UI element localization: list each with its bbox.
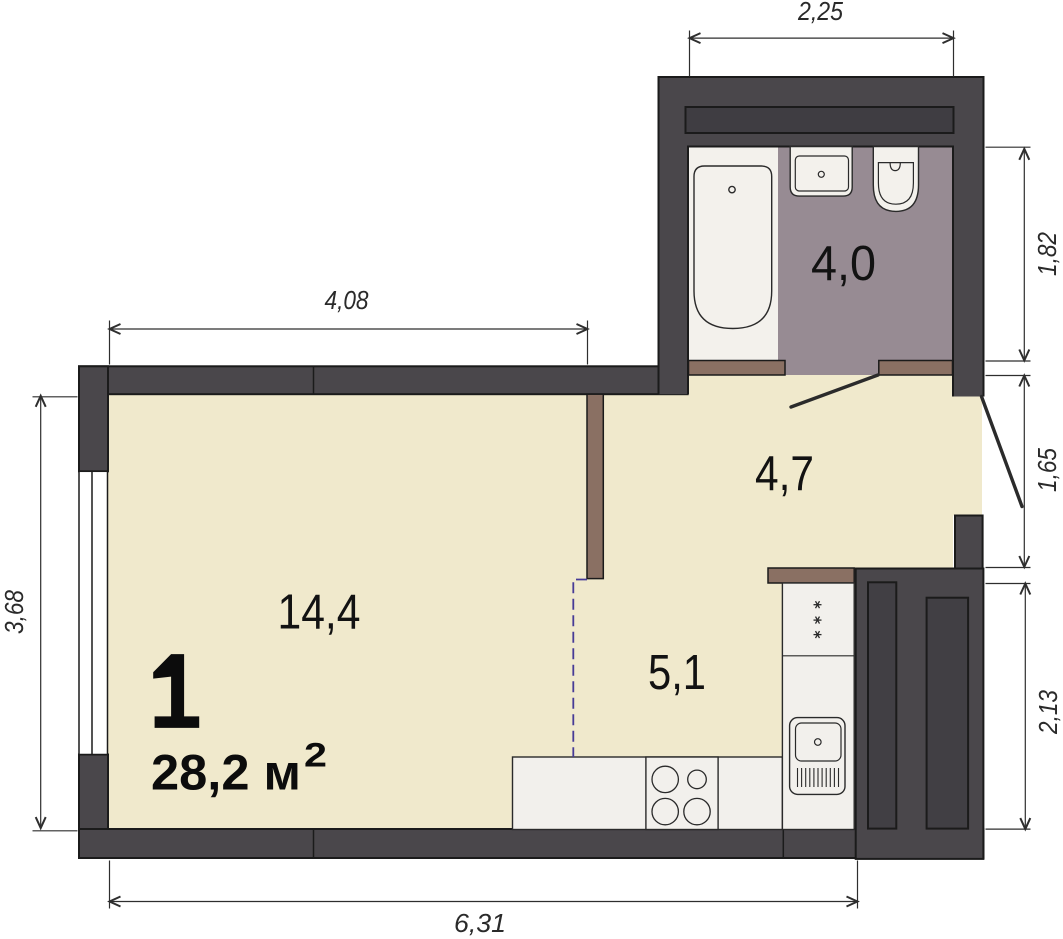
svg-text:4,7: 4,7 <box>755 446 814 501</box>
svg-text:2,25: 2,25 <box>797 0 843 26</box>
svg-text:28,2 м: 28,2 м <box>151 744 301 800</box>
svg-text:2,13: 2,13 <box>1033 690 1063 735</box>
svg-text:2: 2 <box>304 737 327 775</box>
svg-text:4,08: 4,08 <box>325 285 369 315</box>
svg-text:3,68: 3,68 <box>0 590 29 634</box>
svg-text:1,65: 1,65 <box>1032 448 1062 492</box>
svg-text:6,31: 6,31 <box>454 908 506 938</box>
svg-text:5,1: 5,1 <box>648 645 706 700</box>
svg-text:1,82: 1,82 <box>1032 232 1062 276</box>
svg-text:4,0: 4,0 <box>811 236 876 291</box>
svg-text:14,4: 14,4 <box>278 585 361 640</box>
